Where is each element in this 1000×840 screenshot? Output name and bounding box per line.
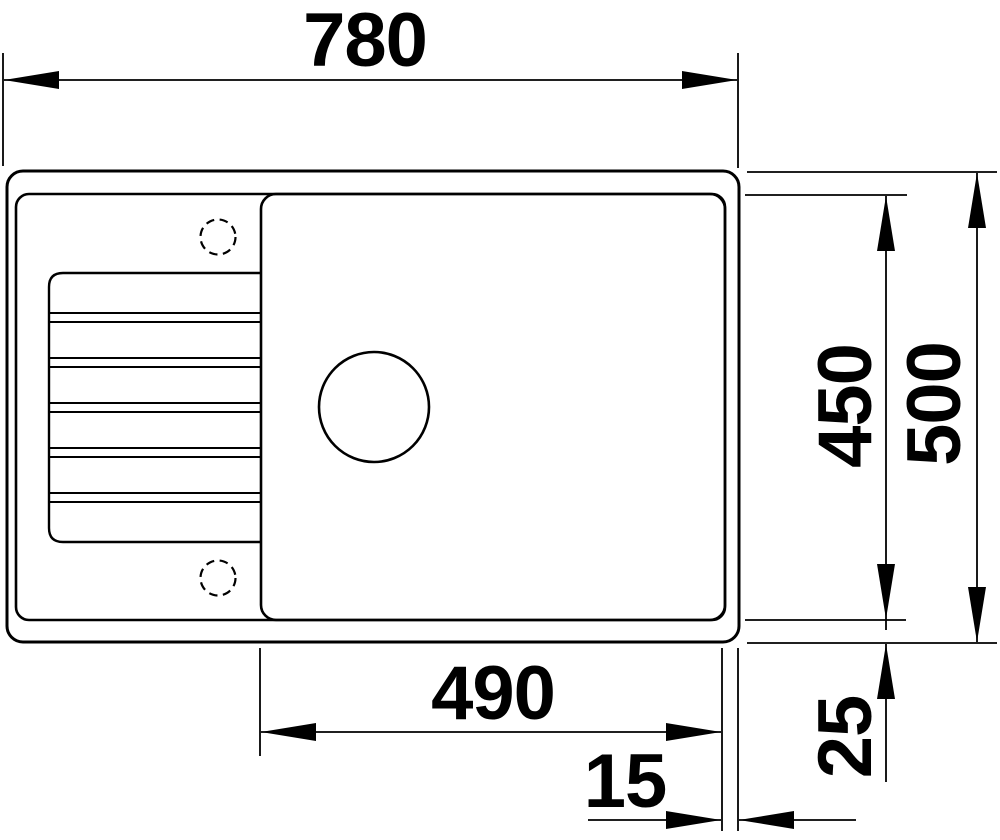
dimension-overall-width: 780 [3,0,738,168]
dim-label-overall-width: 780 [303,0,427,83]
arrowhead-left [261,723,316,741]
dim-label-bottom-rim: 25 [803,696,888,779]
arrowhead-down [968,587,986,642]
arrowhead-up [968,173,986,228]
sink-outer-outline [7,171,739,642]
arrowhead-right [682,71,737,89]
arrowhead-left [4,71,59,89]
arrowhead-right [666,811,721,829]
arrowhead-up [877,196,895,251]
dim-label-inner-depth: 450 [803,344,888,468]
drain-hole [319,352,429,462]
dim-label-overall-depth: 500 [892,342,977,466]
dimension-bottom-rim: 25 [803,644,895,782]
tap-hole-bottom [201,561,236,596]
arrowhead-left [739,811,794,829]
tap-hole-top [201,220,236,255]
arrowhead-up [877,644,895,699]
sink-inner-rim-outline [16,194,725,620]
dim-label-right-rim: 15 [584,739,667,824]
arrowhead-down [877,564,895,619]
dim-label-bowl-width: 490 [431,651,555,736]
arrowhead-right [666,723,721,741]
dimension-inner-depth: 450 [745,195,907,630]
drainboard-ribs [49,313,261,502]
bowl-outline [261,194,725,620]
sink-technical-drawing: 780 500 450 25 [0,0,1000,840]
